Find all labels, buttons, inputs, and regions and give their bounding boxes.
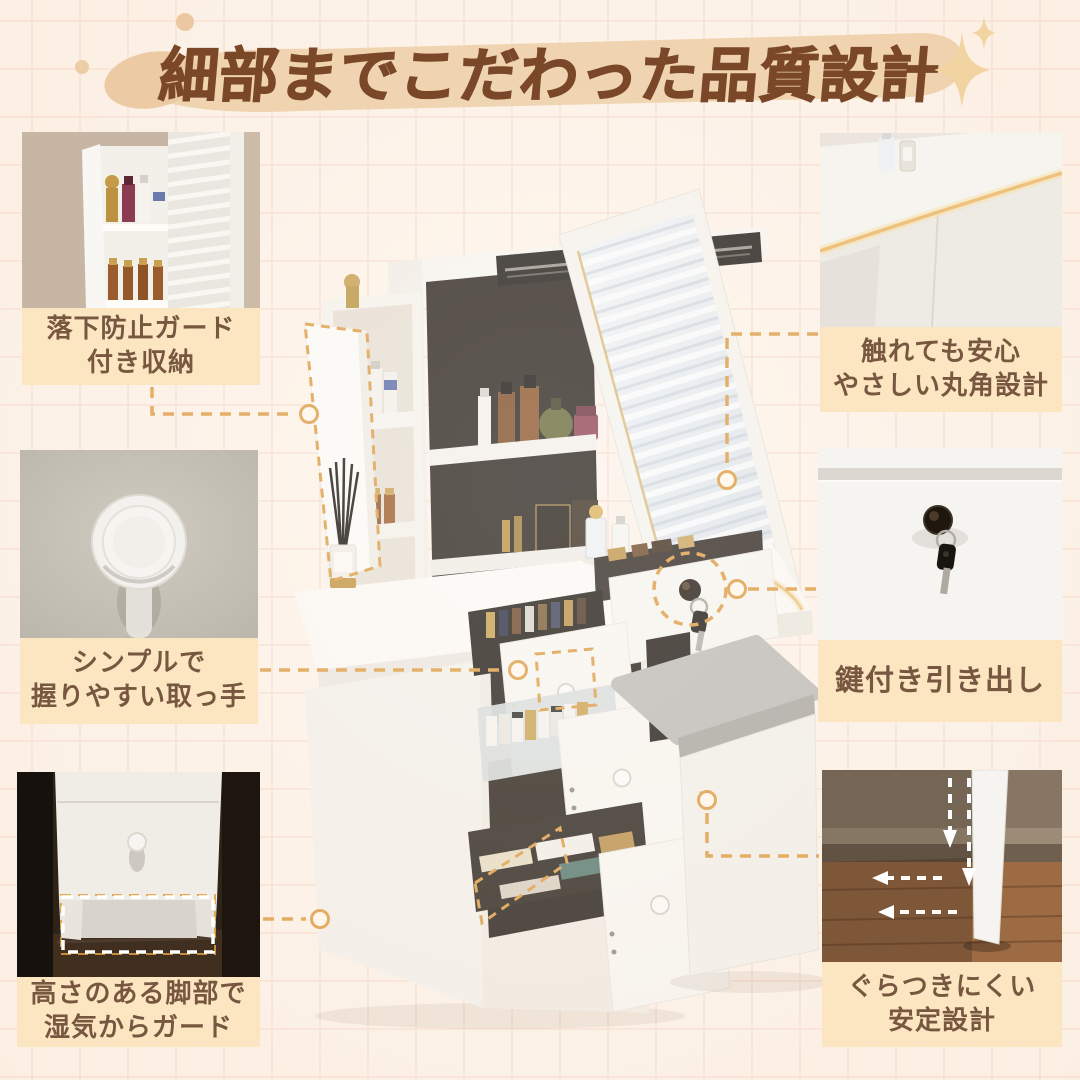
callout-handle: シンプルで 握りやすい取っ手 xyxy=(20,450,258,724)
photo-stable-leg xyxy=(822,770,1062,962)
callout-fall-guard-storage: 落下防止ガード 付き収納 xyxy=(22,132,260,385)
product-infographic: 細部までこだわった品質設計 xyxy=(0,0,1080,1080)
connector-fall-guard xyxy=(152,387,296,414)
callout-label: 触れても安心 やさしい丸角設計 xyxy=(820,327,1062,412)
photo-shelf-guard xyxy=(22,132,260,308)
drawer-knob xyxy=(614,770,631,787)
photo-knob xyxy=(20,450,258,638)
label-line: やさしい丸角設計 xyxy=(820,370,1062,404)
under-cabinet-gap xyxy=(79,900,197,938)
photo-key-lock xyxy=(818,448,1062,640)
label-line: 安定設計 xyxy=(822,1005,1062,1039)
callout-label: 鍵付き引き出し xyxy=(818,640,1062,722)
label-line: 付き収納 xyxy=(22,347,260,381)
drawer-knob xyxy=(651,896,669,914)
keyhole xyxy=(924,506,952,534)
sparkle-icon xyxy=(920,8,1060,138)
photo-table-corner xyxy=(820,133,1062,327)
callout-label: シンプルで 握りやすい取っ手 xyxy=(20,638,258,724)
label-line: 落下防止ガード xyxy=(22,313,260,347)
mirror-edge xyxy=(168,132,230,308)
label-line: 高さのある脚部で xyxy=(17,978,260,1012)
callout-label: ぐらつきにくい 安定設計 xyxy=(822,962,1062,1047)
callout-tall-legs: 高さのある脚部で 湿気からガード xyxy=(17,772,260,1047)
page-title: 細部までこだわった品質設計 xyxy=(137,30,964,110)
callout-stable-design: ぐらつきにくい 安定設計 xyxy=(822,770,1062,1047)
label-line: 握りやすい取っ手 xyxy=(20,681,258,715)
callout-label: 高さのある脚部で 湿気からガード xyxy=(17,977,260,1047)
label-line: 湿気からガード xyxy=(17,1012,260,1046)
photo-cabinet-legs xyxy=(17,772,260,977)
label-line: 鍵付き引き出し xyxy=(818,662,1062,700)
label-line: シンプルで xyxy=(20,647,258,681)
callout-rounded-corner: 触れても安心 やさしい丸角設計 xyxy=(820,133,1062,412)
callout-label: 落下防止ガード 付き収納 xyxy=(22,308,260,385)
label-line: ぐらつきにくい xyxy=(822,971,1062,1005)
label-line: 触れても安心 xyxy=(820,336,1062,370)
callout-lock-drawer: 鍵付き引き出し xyxy=(818,448,1062,722)
